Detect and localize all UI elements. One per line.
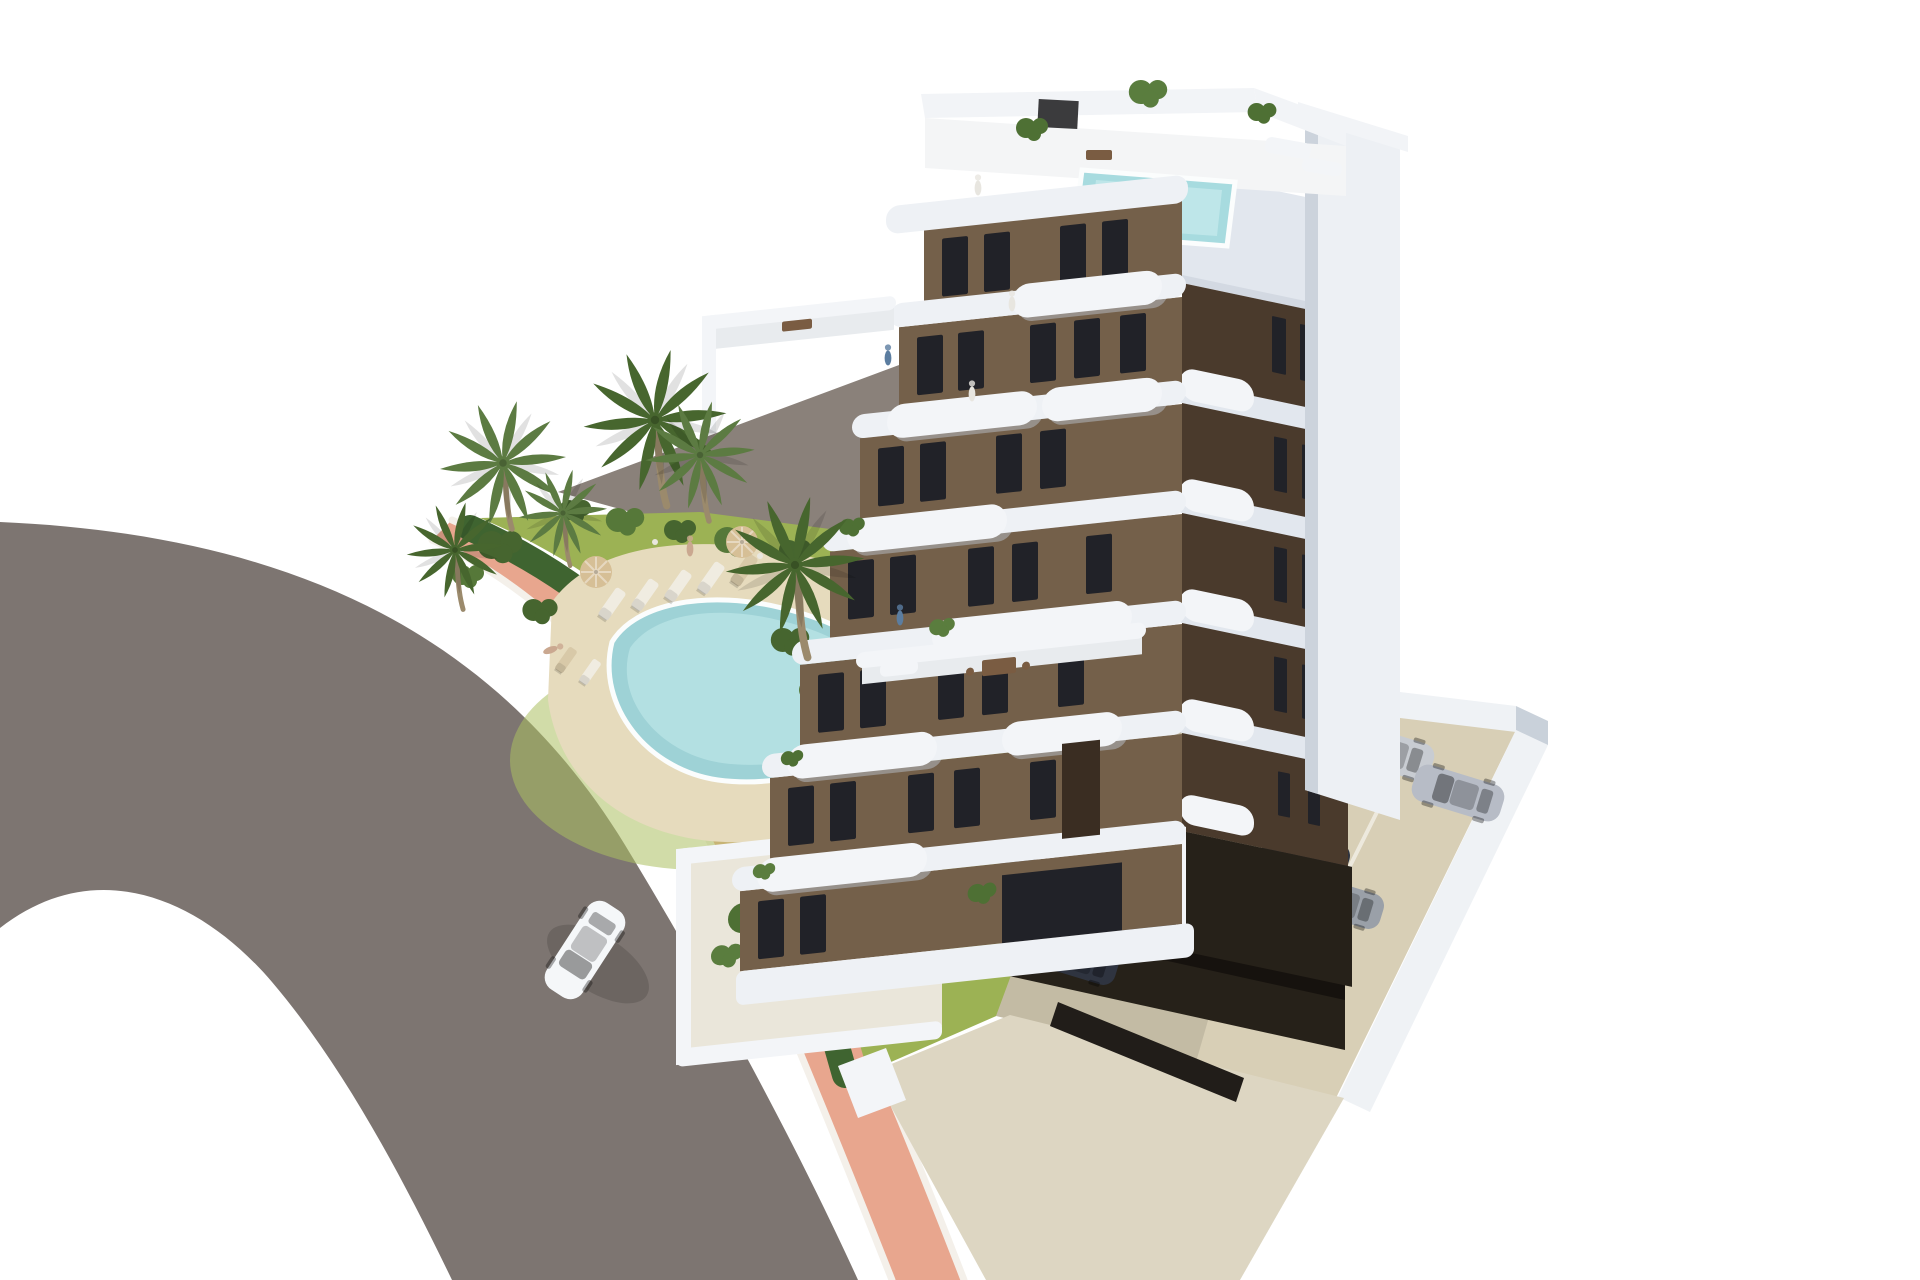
- rooftop-bench: [1086, 150, 1112, 160]
- stone: [652, 539, 658, 545]
- person-figure: [897, 604, 904, 625]
- patio-wall-left: [676, 847, 691, 1065]
- stone: [757, 553, 763, 559]
- person-figure: [687, 535, 694, 556]
- person-figure: [975, 174, 982, 195]
- architectural-render-scene: [0, 0, 1920, 1280]
- render-canvas: [0, 0, 1920, 1280]
- entrance-opening: [1002, 862, 1122, 943]
- terrace-dark-chimney: [1062, 740, 1100, 839]
- parasol: [580, 556, 612, 588]
- person-figure: [885, 344, 892, 365]
- right-gable-shade: [1305, 112, 1318, 794]
- person-figure: [969, 380, 976, 401]
- person-figure: [1009, 290, 1016, 311]
- right-gable-wall: [1305, 112, 1400, 820]
